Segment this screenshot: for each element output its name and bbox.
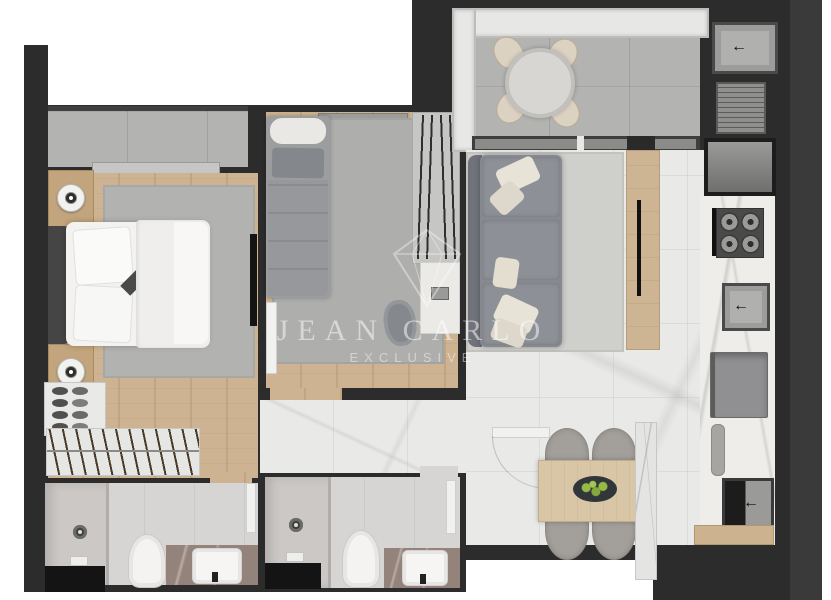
- desk-monitor-icon: [431, 287, 449, 300]
- tv-screen: [637, 200, 641, 296]
- hallway-floor: [260, 400, 466, 473]
- bedroom2-desk: [420, 262, 460, 334]
- single-bed-blanket: [268, 180, 328, 296]
- bathroom2-door-leaf: [446, 480, 456, 534]
- sofa-pillow: [492, 256, 520, 289]
- laundry-tank-sink: ←: [712, 22, 778, 74]
- single-bed-pillow: [272, 148, 325, 179]
- bed-pillow: [72, 226, 134, 286]
- bedroom1-tv: [250, 234, 257, 326]
- faucet-icon: ←: [743, 495, 759, 511]
- shower-tray: [286, 552, 304, 562]
- shoe-icon: [72, 387, 88, 395]
- closet-rail-bar: [47, 450, 199, 452]
- fruit-bowl: [573, 476, 617, 502]
- hanger-column: [415, 115, 434, 259]
- shower-tray: [70, 556, 88, 566]
- shoe-icon: [72, 411, 88, 419]
- cutting-board: [711, 424, 725, 476]
- shoe-icon: [52, 411, 68, 419]
- bathroom2-shaft: [265, 563, 321, 589]
- kitchen-wood-threshold: [694, 525, 774, 545]
- balcony-railing-top: [452, 8, 709, 38]
- bed-sheet-fold: [174, 222, 208, 344]
- balcony-railing-left: [452, 8, 476, 152]
- bathroom2-toilet: [342, 530, 380, 588]
- basin-faucet-icon: [212, 572, 218, 582]
- kitchen-island: [635, 422, 657, 580]
- shoe-icon: [72, 399, 88, 407]
- bedroom2-door-leaf: [266, 302, 277, 374]
- window-ledge: [48, 106, 248, 167]
- shoe-icon: [52, 399, 68, 407]
- tv-console-panel: [626, 150, 660, 350]
- basin-faucet-icon: [420, 574, 426, 584]
- balcony-round-table: [505, 48, 575, 118]
- backdrop-right-margin: [790, 0, 822, 600]
- bathroom1-shaft: [45, 566, 105, 592]
- refrigerator: [710, 352, 768, 418]
- shower-head-icon: [73, 525, 87, 539]
- floor-plan-render: ← ← ← JEAN CARLO EXCLUSIVE: [0, 0, 831, 600]
- bathroom2-door-gap: [420, 466, 458, 478]
- drying-rack: [716, 82, 766, 134]
- bathroom1-glass-partition: [106, 483, 109, 585]
- glass-pane: [475, 139, 577, 149]
- kitchen-sink: ←: [722, 283, 770, 331]
- single-bed-bolster: [270, 118, 326, 144]
- faucet-icon: ←: [731, 39, 747, 55]
- cooktop-sink: ←: [722, 478, 774, 529]
- bathroom2-glass-partition: [328, 477, 331, 588]
- gas-stove: [716, 208, 764, 258]
- table-lamp-icon: [57, 184, 85, 212]
- faucet-icon: ←: [733, 298, 749, 314]
- bed-pillow: [73, 285, 134, 344]
- bathroom1-door-leaf: [246, 483, 256, 533]
- bathroom1-toilet: [128, 534, 166, 588]
- wall-stub-top-left: [24, 45, 48, 107]
- shower-head-icon: [289, 518, 303, 532]
- closet-hanger-rail: [46, 428, 200, 476]
- service-shaft: [704, 138, 776, 196]
- shoe-icon: [52, 387, 68, 395]
